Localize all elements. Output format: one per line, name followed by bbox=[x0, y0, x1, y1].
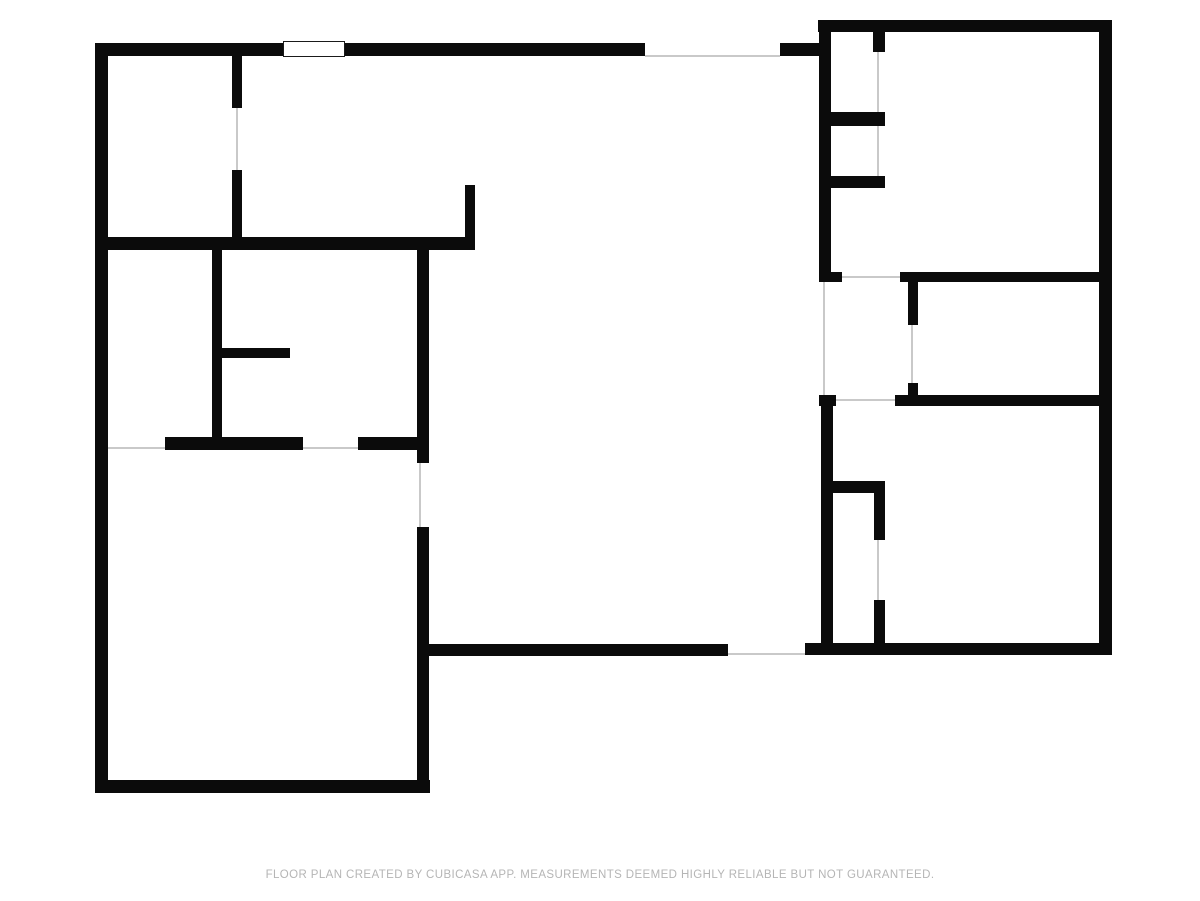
wall-kitchen-peninsula bbox=[465, 185, 475, 237]
wall-laundry-kitchen-divider-lower bbox=[232, 170, 242, 238]
wall-exterior-top-main bbox=[95, 43, 645, 56]
door-bedroom1-hall bbox=[842, 276, 900, 278]
door-bath1 bbox=[303, 447, 358, 449]
opening-hall-living bbox=[823, 282, 825, 395]
wall-bath1-stub bbox=[222, 348, 290, 358]
wall-laundry-kitchen-divider-upper bbox=[232, 55, 242, 108]
wall-wic-bath-divider bbox=[212, 250, 222, 437]
wall-living-left-upper bbox=[417, 245, 429, 463]
opening-closet3 bbox=[877, 540, 879, 600]
wall-bedroom1-top bbox=[818, 20, 1112, 32]
wall-bedroom1-left bbox=[819, 32, 831, 282]
wall-living-bottom bbox=[417, 644, 728, 656]
opening-dining-top-exterior bbox=[645, 55, 780, 57]
wall-exterior-right bbox=[1099, 20, 1112, 655]
opening-closet2 bbox=[877, 126, 879, 176]
wall-bedroom2-left bbox=[821, 395, 833, 647]
footer-disclaimer: FLOOR PLAN CREATED BY CUBICASA APP. MEAS… bbox=[0, 869, 1200, 881]
opening-closet1 bbox=[877, 52, 879, 112]
wall-closet3-top bbox=[828, 481, 885, 493]
wall-wic-bath-bottom-left bbox=[165, 437, 303, 450]
wall-hall-top-stub bbox=[819, 272, 842, 282]
window-kitchen-top bbox=[283, 41, 345, 57]
wall-primary-bottom bbox=[95, 780, 430, 793]
wall-closet2-bottom bbox=[828, 176, 885, 188]
wall-exterior-left bbox=[95, 43, 108, 793]
door-living-primary bbox=[419, 463, 421, 527]
door-wic bbox=[108, 447, 165, 449]
wall-closet3-right-lower bbox=[874, 600, 885, 645]
wall-bath2-bottom bbox=[895, 395, 1099, 406]
wall-closet1-stub bbox=[873, 32, 885, 52]
opening-living-bottom-exterior bbox=[728, 653, 805, 655]
wall-hall-bath2-divider-upper bbox=[908, 282, 918, 325]
floor-plan-canvas: FLOOR PLAN CREATED BY CUBICASA APP. MEAS… bbox=[0, 0, 1200, 901]
door-bath2-hall bbox=[911, 325, 913, 383]
wall-bedroom2-bottom bbox=[805, 643, 1112, 655]
wall-closet1-bottom bbox=[828, 112, 885, 126]
wall-bath2-top bbox=[900, 272, 1099, 282]
wall-living-left-lower bbox=[417, 527, 429, 793]
wall-closet3-right-upper bbox=[874, 493, 885, 540]
door-bedroom2-hall bbox=[836, 399, 895, 401]
door-laundry-kitchen bbox=[236, 108, 238, 170]
